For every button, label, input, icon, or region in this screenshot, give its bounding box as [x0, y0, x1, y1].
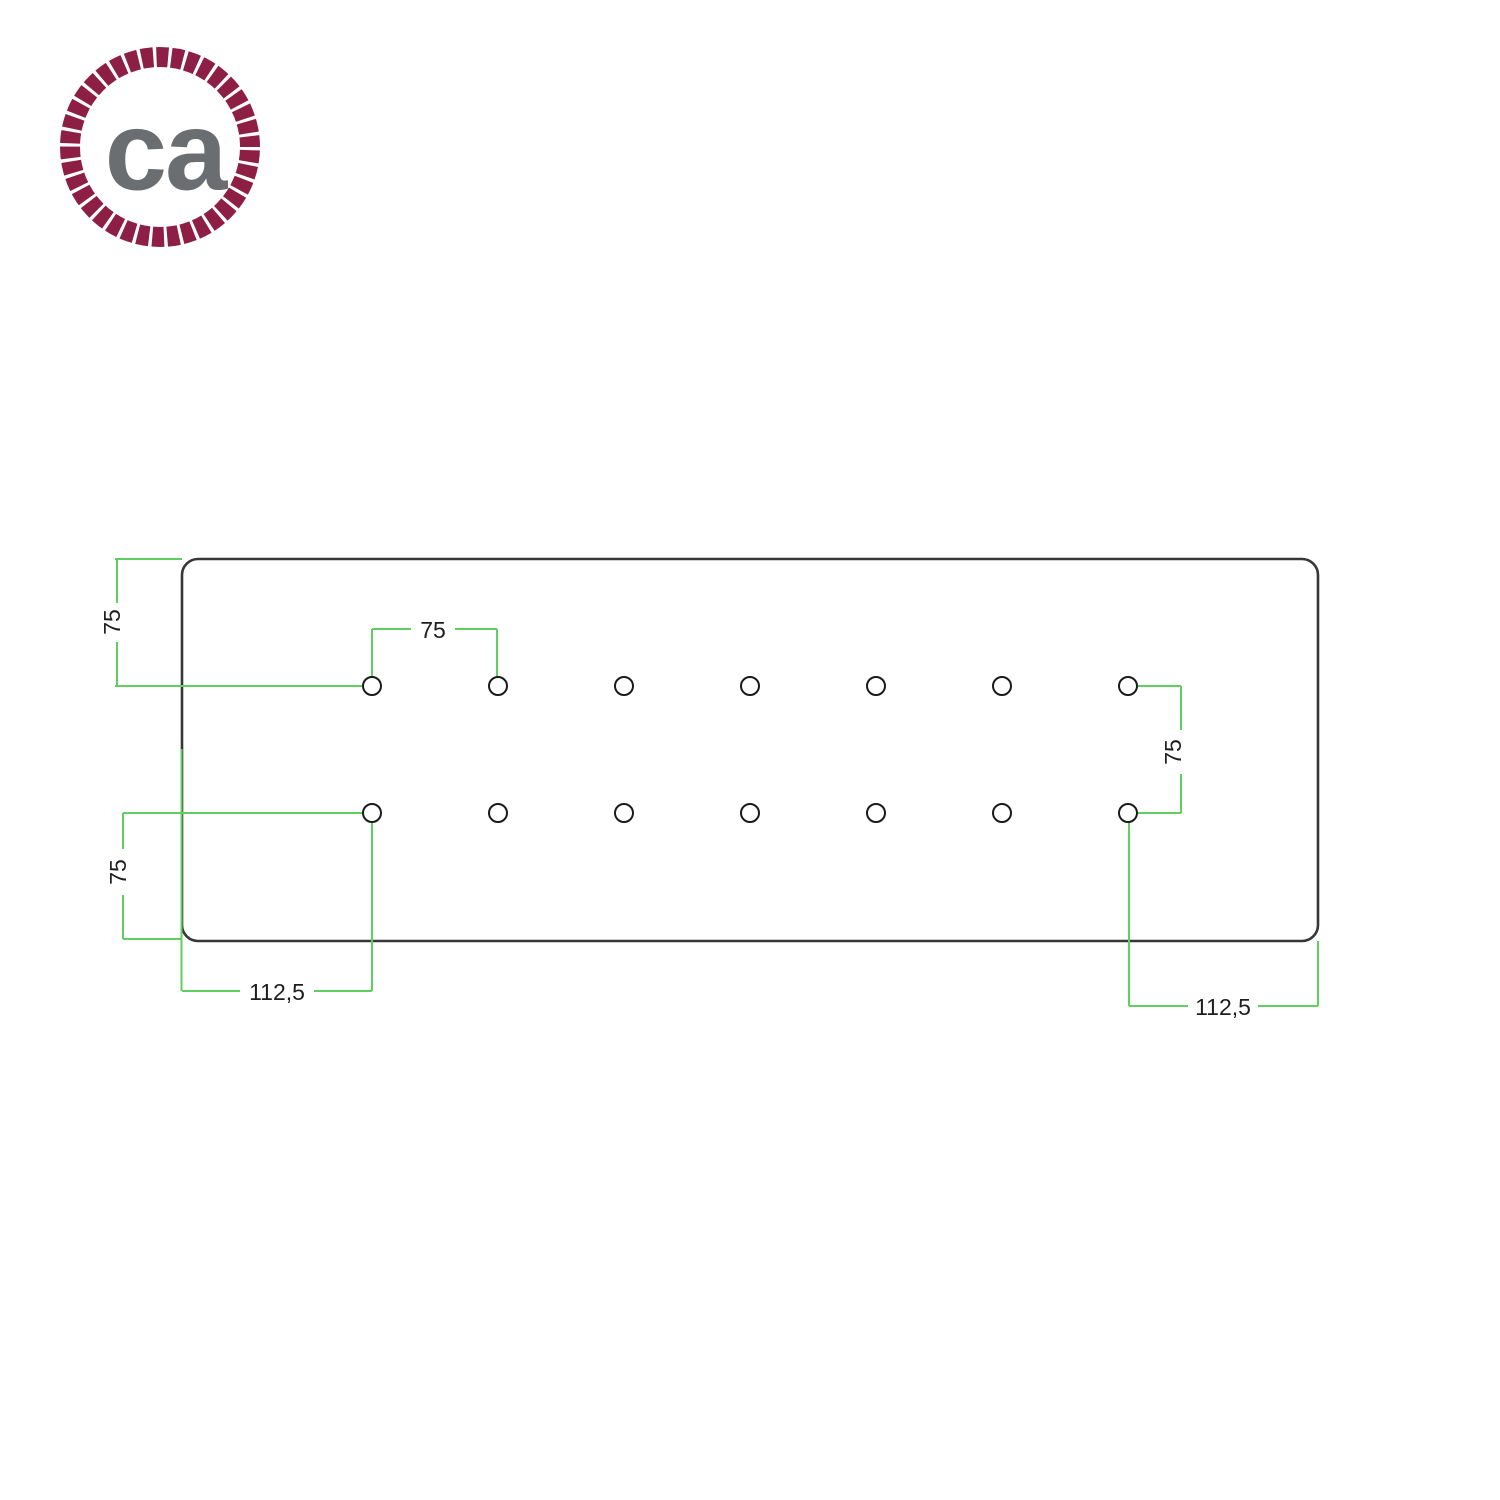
hole	[489, 677, 507, 695]
hole	[615, 804, 633, 822]
brand-logo: ca	[70, 57, 250, 237]
hole	[363, 804, 381, 822]
hole	[867, 804, 885, 822]
hole	[1119, 804, 1137, 822]
hole	[363, 677, 381, 695]
hole	[993, 804, 1011, 822]
hole	[867, 677, 885, 695]
dim-label-top-left-vertical: 75	[99, 609, 125, 635]
dim-label-top-hole-spacing: 75	[420, 617, 446, 643]
hole	[741, 677, 759, 695]
dim-label-bottom-left-vertical: 75	[105, 859, 131, 885]
dim-label-right-row-spacing: 75	[1160, 739, 1186, 765]
dim-label-bottom-right-horizontal: 112,5	[1195, 994, 1251, 1020]
hole	[741, 804, 759, 822]
product-drawing-page: ca	[0, 0, 1500, 1500]
technical-drawing-canvas: ca	[0, 0, 1500, 1500]
plate-outline	[182, 559, 1318, 941]
logo-text: ca	[105, 89, 228, 214]
hole	[489, 804, 507, 822]
dim-label-bottom-left-horizontal: 112,5	[249, 979, 305, 1005]
hole	[993, 677, 1011, 695]
hole	[615, 677, 633, 695]
hole	[1119, 677, 1137, 695]
